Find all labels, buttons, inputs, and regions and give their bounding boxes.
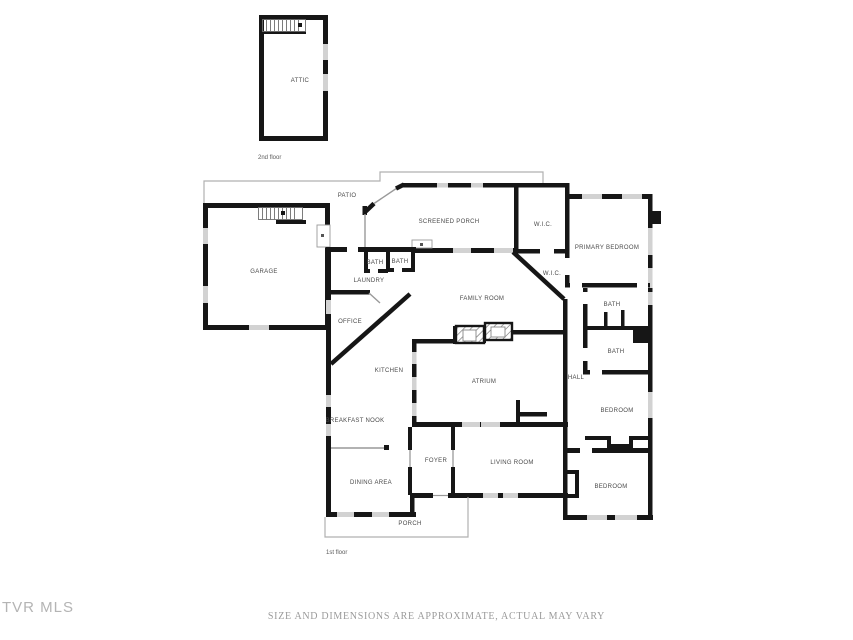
floorplan-drawing: [0, 0, 853, 640]
screened-porch-walls: [363, 183, 519, 253]
fireplace-icon: [456, 323, 512, 343]
disclaimer-text: SIZE AND DIMENSIONS ARE APPROXIMATE, ACT…: [20, 611, 853, 622]
room-label-bath-4: BATH: [608, 349, 625, 355]
room-label-breakfast-nook: BREAKFAST NOOK: [326, 418, 385, 424]
screened-porch-windows: [437, 183, 513, 253]
room-label-porch: PORCH: [398, 521, 421, 527]
room-label-bath-2: BATH: [392, 259, 409, 265]
floor-label-1st: 1st floor: [326, 550, 347, 556]
garage-windows: [203, 228, 269, 330]
floorplan-canvas: ATTIC PATIO SCREENED PORCH W.I.C. PRIMAR…: [0, 0, 853, 640]
room-label-atrium: ATRIUM: [472, 379, 496, 385]
room-label-family-room: FAMILY ROOM: [460, 296, 504, 302]
room-label-bedroom-2: BEDROOM: [594, 484, 627, 490]
room-label-bath-1: BATH: [367, 260, 384, 266]
breakfast-nook-railing: [331, 445, 389, 450]
room-label-wic-1: W.I.C.: [534, 222, 552, 228]
room-label-office: OFFICE: [338, 319, 362, 325]
room-label-living-room: LIVING ROOM: [490, 460, 533, 466]
room-label-primary-bedroom: PRIMARY BEDROOM: [575, 245, 639, 251]
floor-label-2nd: 2nd floor: [258, 155, 281, 161]
room-label-patio: PATIO: [338, 193, 357, 199]
atrium-windows: [412, 352, 500, 427]
room-label-wic-2: W.I.C.: [543, 271, 561, 277]
water-heater-icon: [317, 225, 330, 247]
room-label-garage: GARAGE: [250, 269, 277, 275]
room-label-laundry: LAUNDRY: [354, 278, 385, 284]
room-label-hall: HALL: [568, 375, 584, 381]
room-label-foyer: FOYER: [425, 458, 447, 464]
room-label-attic: ATTIC: [291, 78, 309, 84]
room-label-bedroom-1: BEDROOM: [600, 408, 633, 414]
house-left-wall: [326, 247, 331, 517]
room-label-dining-area: DINING AREA: [350, 480, 392, 486]
front-door-gap: [433, 493, 448, 498]
garage-walls: [203, 203, 330, 330]
office-walls: [328, 290, 410, 364]
room-label-screened-porch: SCREENED PORCH: [419, 219, 480, 225]
room-label-kitchen: KITCHEN: [375, 368, 403, 374]
hall-wing-door-gaps: [570, 283, 648, 453]
porch-step-icon: [412, 240, 432, 248]
garage-stairs-icon: [259, 208, 303, 220]
attic-stairs-icon: [263, 20, 306, 32]
room-label-bath-3: BATH: [604, 302, 621, 308]
